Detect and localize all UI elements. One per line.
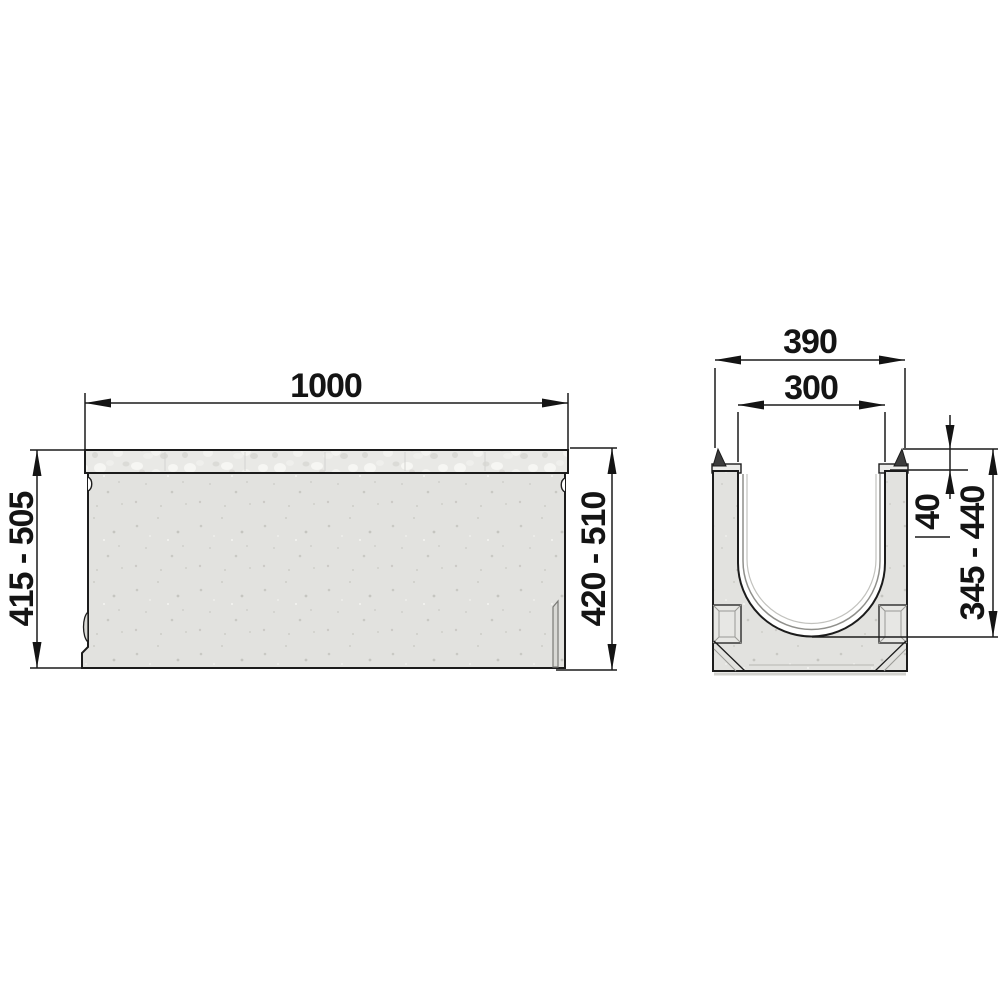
dim-inner-width-extension-lines bbox=[738, 412, 885, 462]
side-view-body bbox=[82, 473, 565, 668]
arrowhead-right bbox=[859, 401, 885, 410]
arrowhead-right bbox=[542, 399, 568, 408]
arrowhead-left bbox=[715, 356, 741, 365]
dim-height-right-label: 420 - 510 bbox=[575, 492, 613, 627]
drawing-canvas: 1000 415 - 505 420 - 510 bbox=[0, 0, 1000, 1000]
joint-notch-right bbox=[561, 478, 565, 492]
arrowhead-up bbox=[989, 449, 998, 475]
side-view: 1000 415 - 505 420 - 510 bbox=[3, 367, 617, 670]
arrowhead-down bbox=[608, 644, 617, 670]
edge-rail-left bbox=[713, 449, 726, 466]
arrowhead-down bbox=[33, 642, 42, 668]
arrowhead-up bbox=[608, 448, 617, 474]
dim-edge-height-label: 40 bbox=[909, 494, 947, 530]
inner-contour-line-2 bbox=[747, 474, 876, 624]
dim-inner-depth-label: 345 - 440 bbox=[954, 486, 992, 621]
arrowhead-up bbox=[33, 450, 42, 476]
dim-inner-width-label: 300 bbox=[784, 369, 838, 407]
arrowhead-left bbox=[85, 399, 111, 408]
arrowhead-left bbox=[738, 401, 764, 410]
joint-notch-left bbox=[88, 477, 92, 491]
anchor-pocket-left bbox=[713, 605, 741, 643]
joint-bump-left bbox=[84, 612, 89, 642]
inner-contour-line bbox=[743, 474, 880, 630]
arrowhead-right bbox=[879, 356, 905, 365]
side-view-grating-strip bbox=[85, 450, 568, 473]
dim-outer-width-label: 390 bbox=[783, 323, 837, 361]
dim-length-label: 1000 bbox=[290, 367, 362, 405]
dim-height-left-label: 415 - 505 bbox=[3, 492, 41, 627]
arrowhead-down bbox=[946, 425, 955, 449]
dim-inner-width: 300 bbox=[738, 369, 885, 462]
dim-height-left: 415 - 505 bbox=[3, 450, 85, 668]
cross-section-view: 390 300 40 345 - 440 bbox=[712, 323, 998, 674]
edge-rail-right bbox=[894, 449, 907, 466]
cross-section-body bbox=[713, 471, 907, 671]
technical-drawing: 1000 415 - 505 420 - 510 bbox=[0, 0, 1000, 1000]
dim-length: 1000 bbox=[85, 367, 568, 450]
joint-ridge-right bbox=[553, 601, 558, 667]
